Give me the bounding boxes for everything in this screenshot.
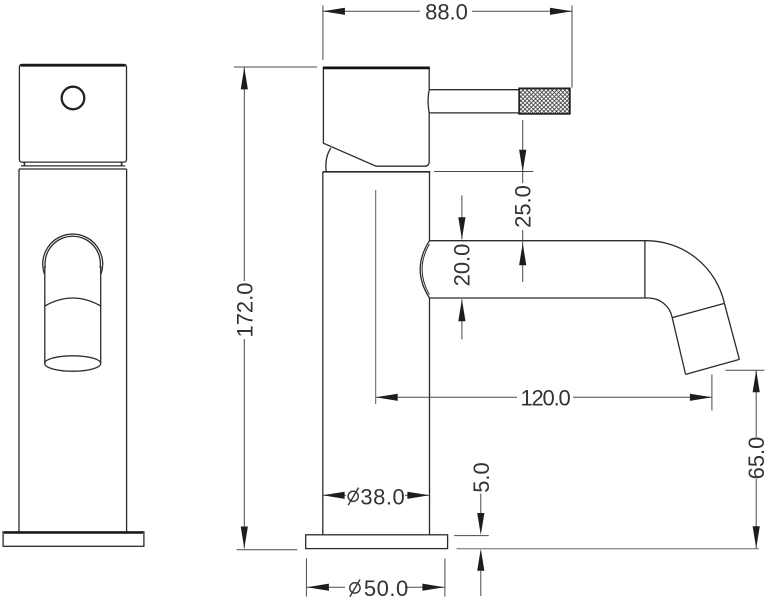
svg-text:88.0: 88.0 [425,0,468,24]
svg-text:25.0: 25.0 [511,185,536,228]
svg-text:120.0: 120.0 [520,385,570,410]
svg-text:20.0: 20.0 [450,244,475,287]
svg-text:172.0: 172.0 [232,282,257,337]
svg-text:5.0: 5.0 [469,462,494,493]
svg-text:38.0: 38.0 [360,484,405,509]
svg-text:50.0: 50.0 [364,576,409,600]
svg-text:65.0: 65.0 [744,437,767,480]
